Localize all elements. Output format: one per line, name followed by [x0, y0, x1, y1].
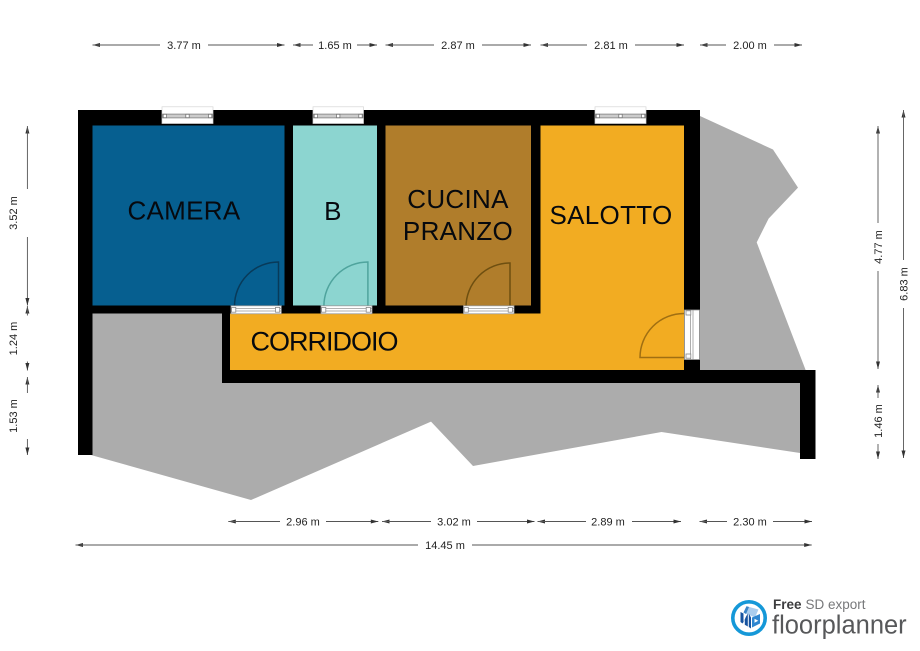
svg-text:6.83 m: 6.83 m	[899, 267, 911, 301]
svg-text:CAMERA: CAMERA	[127, 196, 240, 226]
svg-text:4.77 m: 4.77 m	[873, 230, 885, 264]
svg-text:floorplanner: floorplanner	[772, 612, 907, 640]
svg-text:2.89 m: 2.89 m	[591, 517, 625, 529]
svg-text:1.53 m: 1.53 m	[8, 399, 20, 433]
svg-text:14.45 m: 14.45 m	[425, 540, 465, 552]
svg-text:3.52 m: 3.52 m	[8, 196, 20, 230]
svg-text:2.96 m: 2.96 m	[286, 517, 320, 529]
svg-text:1.24 m: 1.24 m	[8, 322, 20, 356]
svg-text:SALOTTO: SALOTTO	[550, 200, 673, 230]
svg-text:B: B	[324, 196, 342, 226]
svg-text:3.77 m: 3.77 m	[167, 40, 201, 52]
svg-text:CORRIDOIO: CORRIDOIO	[250, 327, 397, 357]
svg-text:2.87 m: 2.87 m	[441, 40, 475, 52]
svg-text:PRANZO: PRANZO	[403, 216, 513, 246]
svg-text:2.30 m: 2.30 m	[733, 517, 767, 529]
svg-text:1.46 m: 1.46 m	[873, 404, 885, 438]
svg-text:CUCINA: CUCINA	[407, 184, 509, 214]
svg-text:Free: Free	[773, 597, 802, 612]
svg-text:2.81 m: 2.81 m	[594, 40, 628, 52]
svg-text:3.02 m: 3.02 m	[437, 517, 471, 529]
svg-text:1.65 m: 1.65 m	[318, 40, 352, 52]
svg-text:2.00 m: 2.00 m	[733, 40, 767, 52]
svg-text:SD export: SD export	[806, 597, 866, 612]
